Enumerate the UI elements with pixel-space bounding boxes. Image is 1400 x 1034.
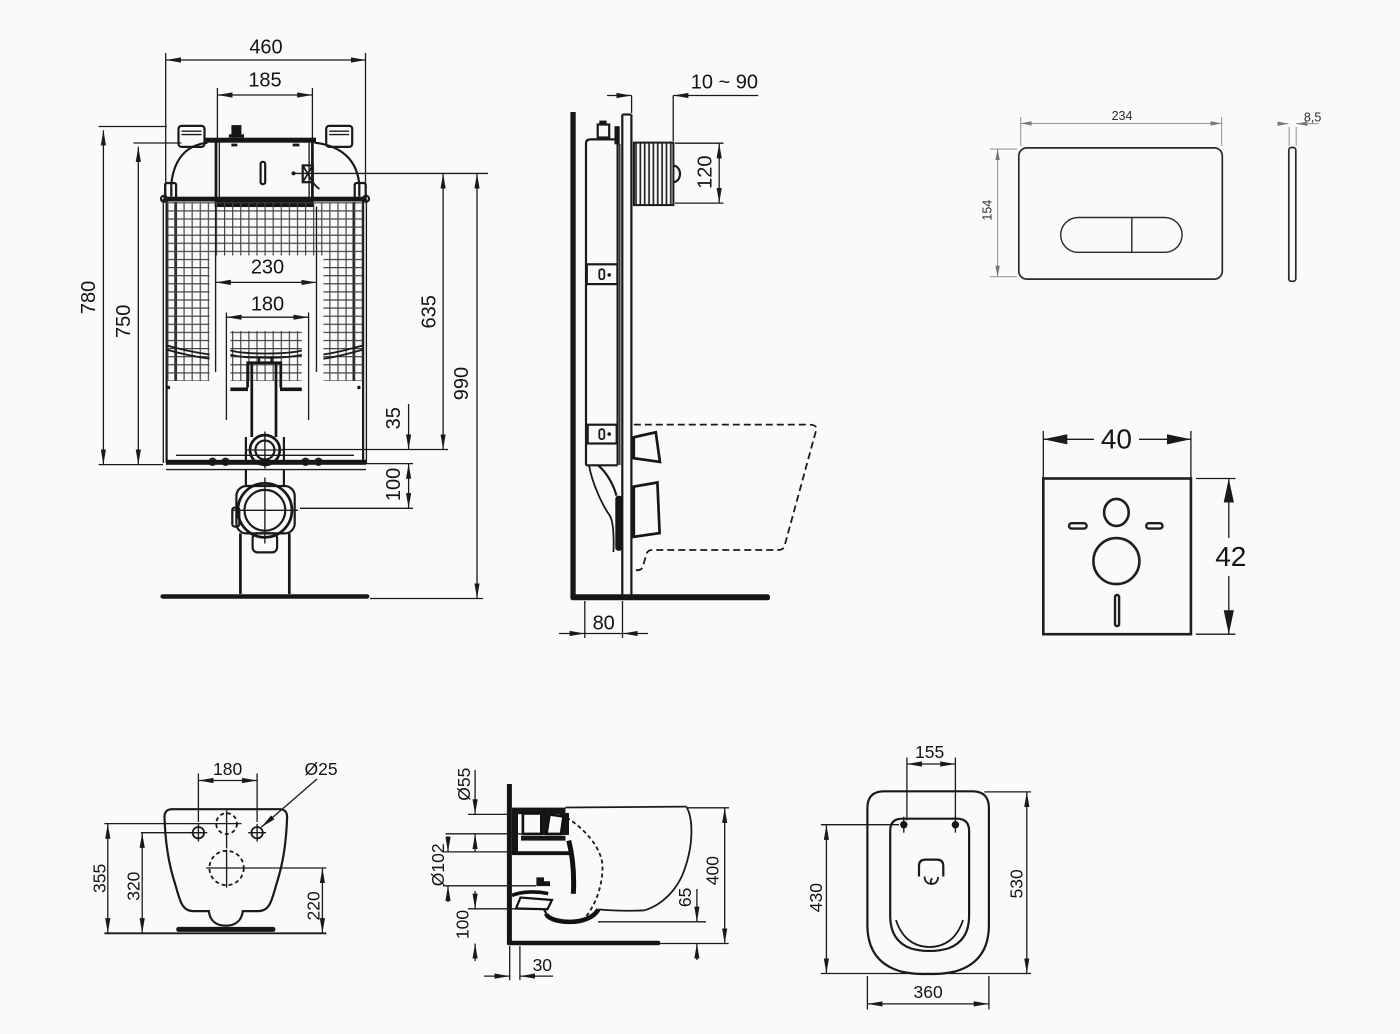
svg-text:530: 530 [1006, 869, 1026, 898]
svg-text:635: 635 [419, 295, 441, 328]
svg-text:120: 120 [694, 156, 716, 189]
svg-text:180: 180 [213, 759, 242, 779]
svg-text:35: 35 [383, 407, 405, 429]
svg-text:360: 360 [913, 982, 942, 1002]
svg-text:155: 155 [915, 742, 944, 762]
svg-text:234: 234 [1112, 109, 1133, 123]
svg-text:154: 154 [981, 200, 995, 221]
svg-text:180: 180 [251, 294, 284, 316]
svg-text:80: 80 [593, 612, 615, 634]
svg-text:100: 100 [453, 910, 473, 939]
svg-text:30: 30 [533, 955, 553, 975]
svg-text:220: 220 [304, 891, 324, 920]
svg-text:42: 42 [1215, 541, 1246, 572]
svg-text:400: 400 [703, 856, 723, 885]
svg-text:185: 185 [248, 69, 281, 91]
svg-text:100: 100 [383, 468, 405, 501]
svg-text:65: 65 [675, 888, 695, 907]
svg-text:8,5: 8,5 [1304, 110, 1321, 124]
svg-text:750: 750 [113, 305, 135, 338]
svg-text:40: 40 [1101, 424, 1132, 455]
svg-text:10 ~ 90: 10 ~ 90 [691, 72, 758, 94]
svg-text:230: 230 [251, 257, 284, 279]
svg-text:460: 460 [249, 36, 282, 58]
svg-text:430: 430 [806, 883, 826, 912]
svg-text:990: 990 [451, 367, 473, 400]
svg-text:Ø25: Ø25 [305, 759, 338, 779]
svg-text:320: 320 [123, 871, 143, 900]
svg-text:Ø102: Ø102 [428, 843, 448, 886]
svg-text:355: 355 [89, 864, 109, 893]
svg-text:780: 780 [78, 281, 100, 314]
svg-text:Ø55: Ø55 [454, 768, 474, 801]
